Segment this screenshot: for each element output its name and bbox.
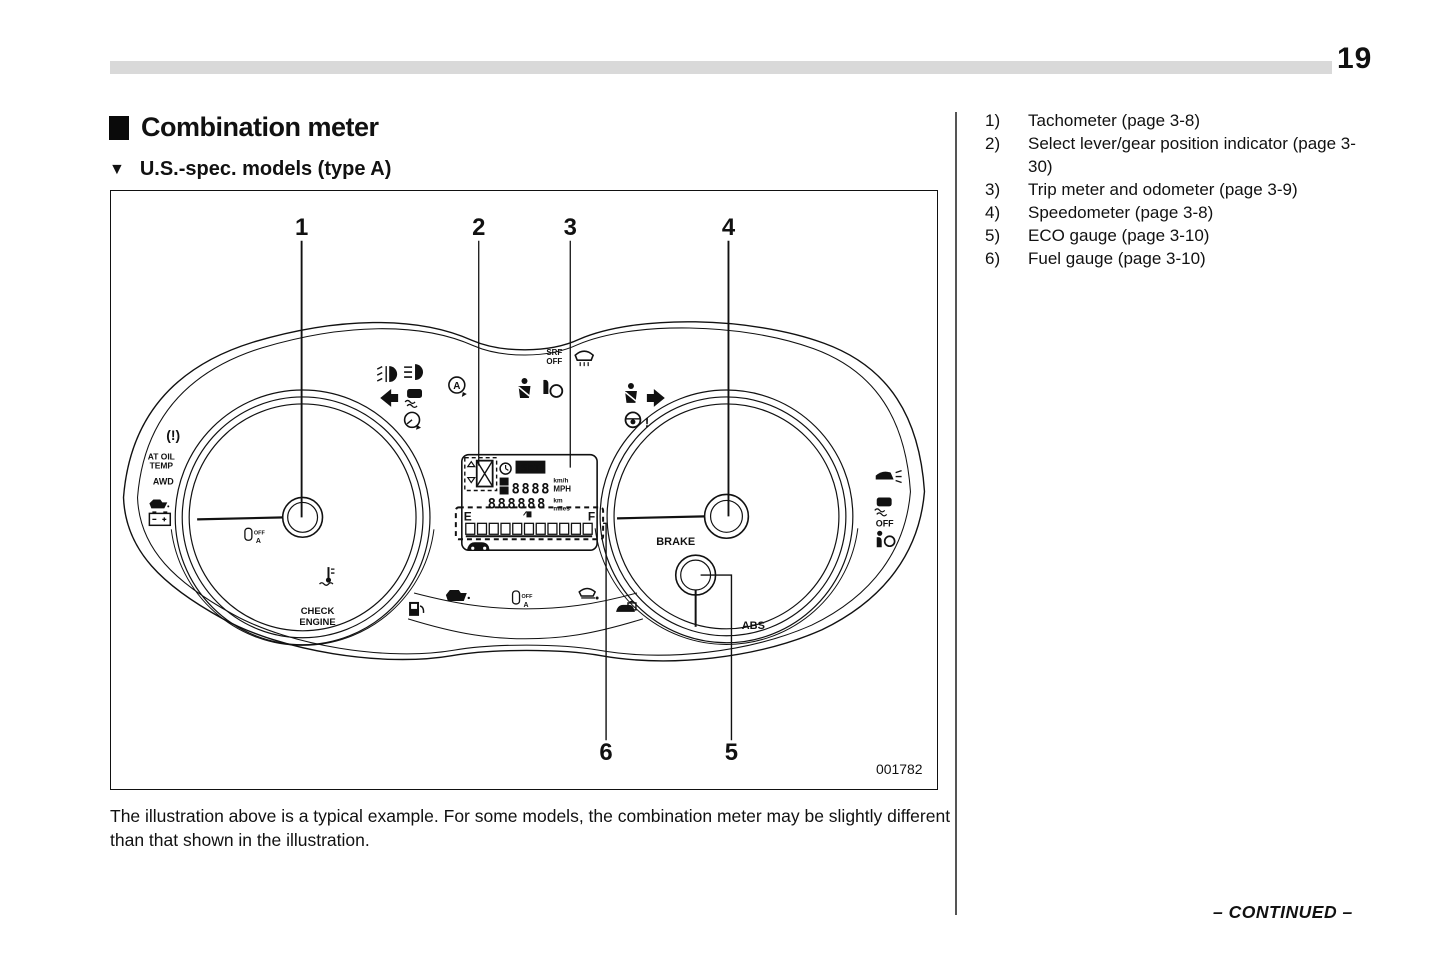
oil-can-icon xyxy=(446,590,470,601)
legend-item-number: 3) xyxy=(985,179,1028,202)
security-icon xyxy=(616,601,636,611)
abs-label: ABS xyxy=(742,620,765,632)
svg-text:SET: SET xyxy=(521,463,540,474)
gear-position-indicator xyxy=(465,458,497,491)
legend-item-text: Trip meter and odometer (page 3-9) xyxy=(1028,179,1378,202)
oil-pressure-icon xyxy=(149,499,169,508)
triangle-bullet-icon: ▼ xyxy=(109,161,125,179)
legend-item-number: 1) xyxy=(985,110,1028,133)
combination-meter-figure: SET A B 8888 km/h MPH 888888 km miles E … xyxy=(110,190,938,790)
section-subtitle: U.S.-spec. models (type A) xyxy=(140,158,392,181)
callout-5: 5 xyxy=(701,575,738,766)
trip-meter-a-b: A B xyxy=(500,478,509,496)
svg-text:TEMP: TEMP xyxy=(150,461,174,471)
legend-item-text: Speedometer (page 3-8) xyxy=(1028,202,1378,225)
section-title: Combination meter xyxy=(141,112,379,143)
vdc-off-icon: OFF xyxy=(875,497,894,528)
svg-text:6: 6 xyxy=(599,739,612,766)
svg-text:5: 5 xyxy=(725,739,738,766)
svg-text:A: A xyxy=(256,538,261,545)
legend-item-text: Fuel gauge (page 3-10) xyxy=(1028,248,1378,271)
kmh-unit: km/h xyxy=(553,478,568,485)
continued-marker: – CONTINUED – xyxy=(1213,902,1353,923)
legend-item: 3) Trip meter and odometer (page 3-9) xyxy=(985,179,1381,202)
legend-item: 6) Fuel gauge (page 3-10) xyxy=(985,248,1381,271)
callout-2: 2 xyxy=(472,214,485,466)
seat-belt-right-icon xyxy=(625,383,637,403)
side-airbag-icon xyxy=(877,531,895,548)
speedometer-needle xyxy=(617,516,705,518)
svg-text:1: 1 xyxy=(295,214,308,241)
exterior-lights-icon xyxy=(876,471,902,483)
svg-text:B: B xyxy=(502,488,507,495)
speedometer-gauge xyxy=(600,390,853,643)
svg-text:A: A xyxy=(453,381,460,392)
section-heading: Combination meter xyxy=(109,112,379,143)
legend-item-text: ECO gauge (page 3-10) xyxy=(1028,225,1378,248)
battery-icon xyxy=(149,512,170,525)
figure-caption: The illustration above is a typical exam… xyxy=(110,804,952,852)
tachometer-needle xyxy=(197,517,285,519)
svg-text:OFF: OFF xyxy=(254,530,266,536)
legend-item-number: 5) xyxy=(985,225,1028,248)
section-subheading: ▼ U.S.-spec. models (type A) xyxy=(109,158,391,181)
speed-digits: 8888 xyxy=(512,481,552,497)
car-silhouette-icon xyxy=(467,542,490,550)
svg-text:OFF: OFF xyxy=(876,518,894,528)
turn-left-icon xyxy=(380,389,398,407)
eco-gauge xyxy=(676,555,716,627)
auto-stop-bottom-icon: OFF A xyxy=(513,591,534,609)
cluster-illustration: SET A B 8888 km/h MPH 888888 km miles E … xyxy=(111,191,936,788)
lcd-display: SET A B 8888 km/h MPH 888888 km miles E … xyxy=(456,455,603,551)
washer-fluid-icon xyxy=(579,589,598,600)
page-number: 19 xyxy=(1337,42,1372,76)
auto-start-stop-a-icon: A xyxy=(449,377,467,397)
callout-1: 1 xyxy=(295,214,308,518)
svg-text:OFF: OFF xyxy=(546,357,562,366)
legend-item-text: Tachometer (page 3-8) xyxy=(1028,110,1378,133)
airbag-icon xyxy=(543,380,562,397)
callout-4: 4 xyxy=(722,214,736,517)
legend-item-text: Select lever/gear position indicator (pa… xyxy=(1028,133,1378,178)
fuel-f-label: F xyxy=(588,509,595,523)
washer-fluid-top-icon xyxy=(575,351,593,366)
mph-unit: MPH xyxy=(553,484,571,493)
srf-off-label: SRF xyxy=(546,348,562,357)
svg-text:OFF: OFF xyxy=(522,594,534,600)
svg-text:(!): (!) xyxy=(166,427,180,443)
callout-6: 6 xyxy=(599,523,612,766)
column-divider xyxy=(955,112,957,915)
svg-text:ENGINE: ENGINE xyxy=(299,617,335,628)
auto-stop-start-icon: OFF A xyxy=(245,528,266,545)
legend-item-number: 4) xyxy=(985,202,1028,225)
odometer-digits: 888888 xyxy=(488,496,547,512)
figure-code: 001782 xyxy=(876,761,923,777)
svg-text:A: A xyxy=(524,602,529,609)
svg-text:2: 2 xyxy=(472,214,485,241)
legend-item-number: 6) xyxy=(985,248,1028,271)
square-bullet-icon xyxy=(109,116,129,140)
brake-label: BRAKE xyxy=(656,536,695,548)
vdc-icon xyxy=(405,389,422,407)
header-rule xyxy=(110,61,1332,74)
fuel-gauge: E F xyxy=(456,507,603,539)
fuel-e-label: E xyxy=(464,509,472,523)
svg-text:A: A xyxy=(502,480,507,487)
legend-item: 5) ECO gauge (page 3-10) xyxy=(985,225,1381,248)
clock-icon xyxy=(500,463,511,474)
legend-item: 2) Select lever/gear position indicator … xyxy=(985,133,1381,178)
legend-item: 4) Speedometer (page 3-8) xyxy=(985,202,1381,225)
turn-right-icon xyxy=(647,389,665,407)
fuel-pump-icon xyxy=(409,602,423,616)
awd-label: AWD xyxy=(153,477,174,487)
check-engine-label: CHECK xyxy=(301,606,335,617)
set-indicator: SET xyxy=(516,461,546,474)
svg-text:4: 4 xyxy=(722,214,736,241)
tpms-icon: (!) xyxy=(166,427,180,443)
high-beam-icon xyxy=(404,364,423,380)
seat-belt-icon xyxy=(519,378,531,398)
legend-list: 1) Tachometer (page 3-8) 2) Select lever… xyxy=(985,110,1381,271)
legend-item-number: 2) xyxy=(985,133,1028,178)
fuel-segments xyxy=(466,523,592,534)
legend-item: 1) Tachometer (page 3-8) xyxy=(985,110,1381,133)
km-unit: km xyxy=(553,497,563,504)
fog-lamp-icon xyxy=(377,366,397,382)
cruise-indicator-icon xyxy=(405,412,421,429)
svg-text:3: 3 xyxy=(564,214,577,241)
svg-text:!: ! xyxy=(645,415,649,430)
coolant-temp-icon xyxy=(320,567,335,585)
